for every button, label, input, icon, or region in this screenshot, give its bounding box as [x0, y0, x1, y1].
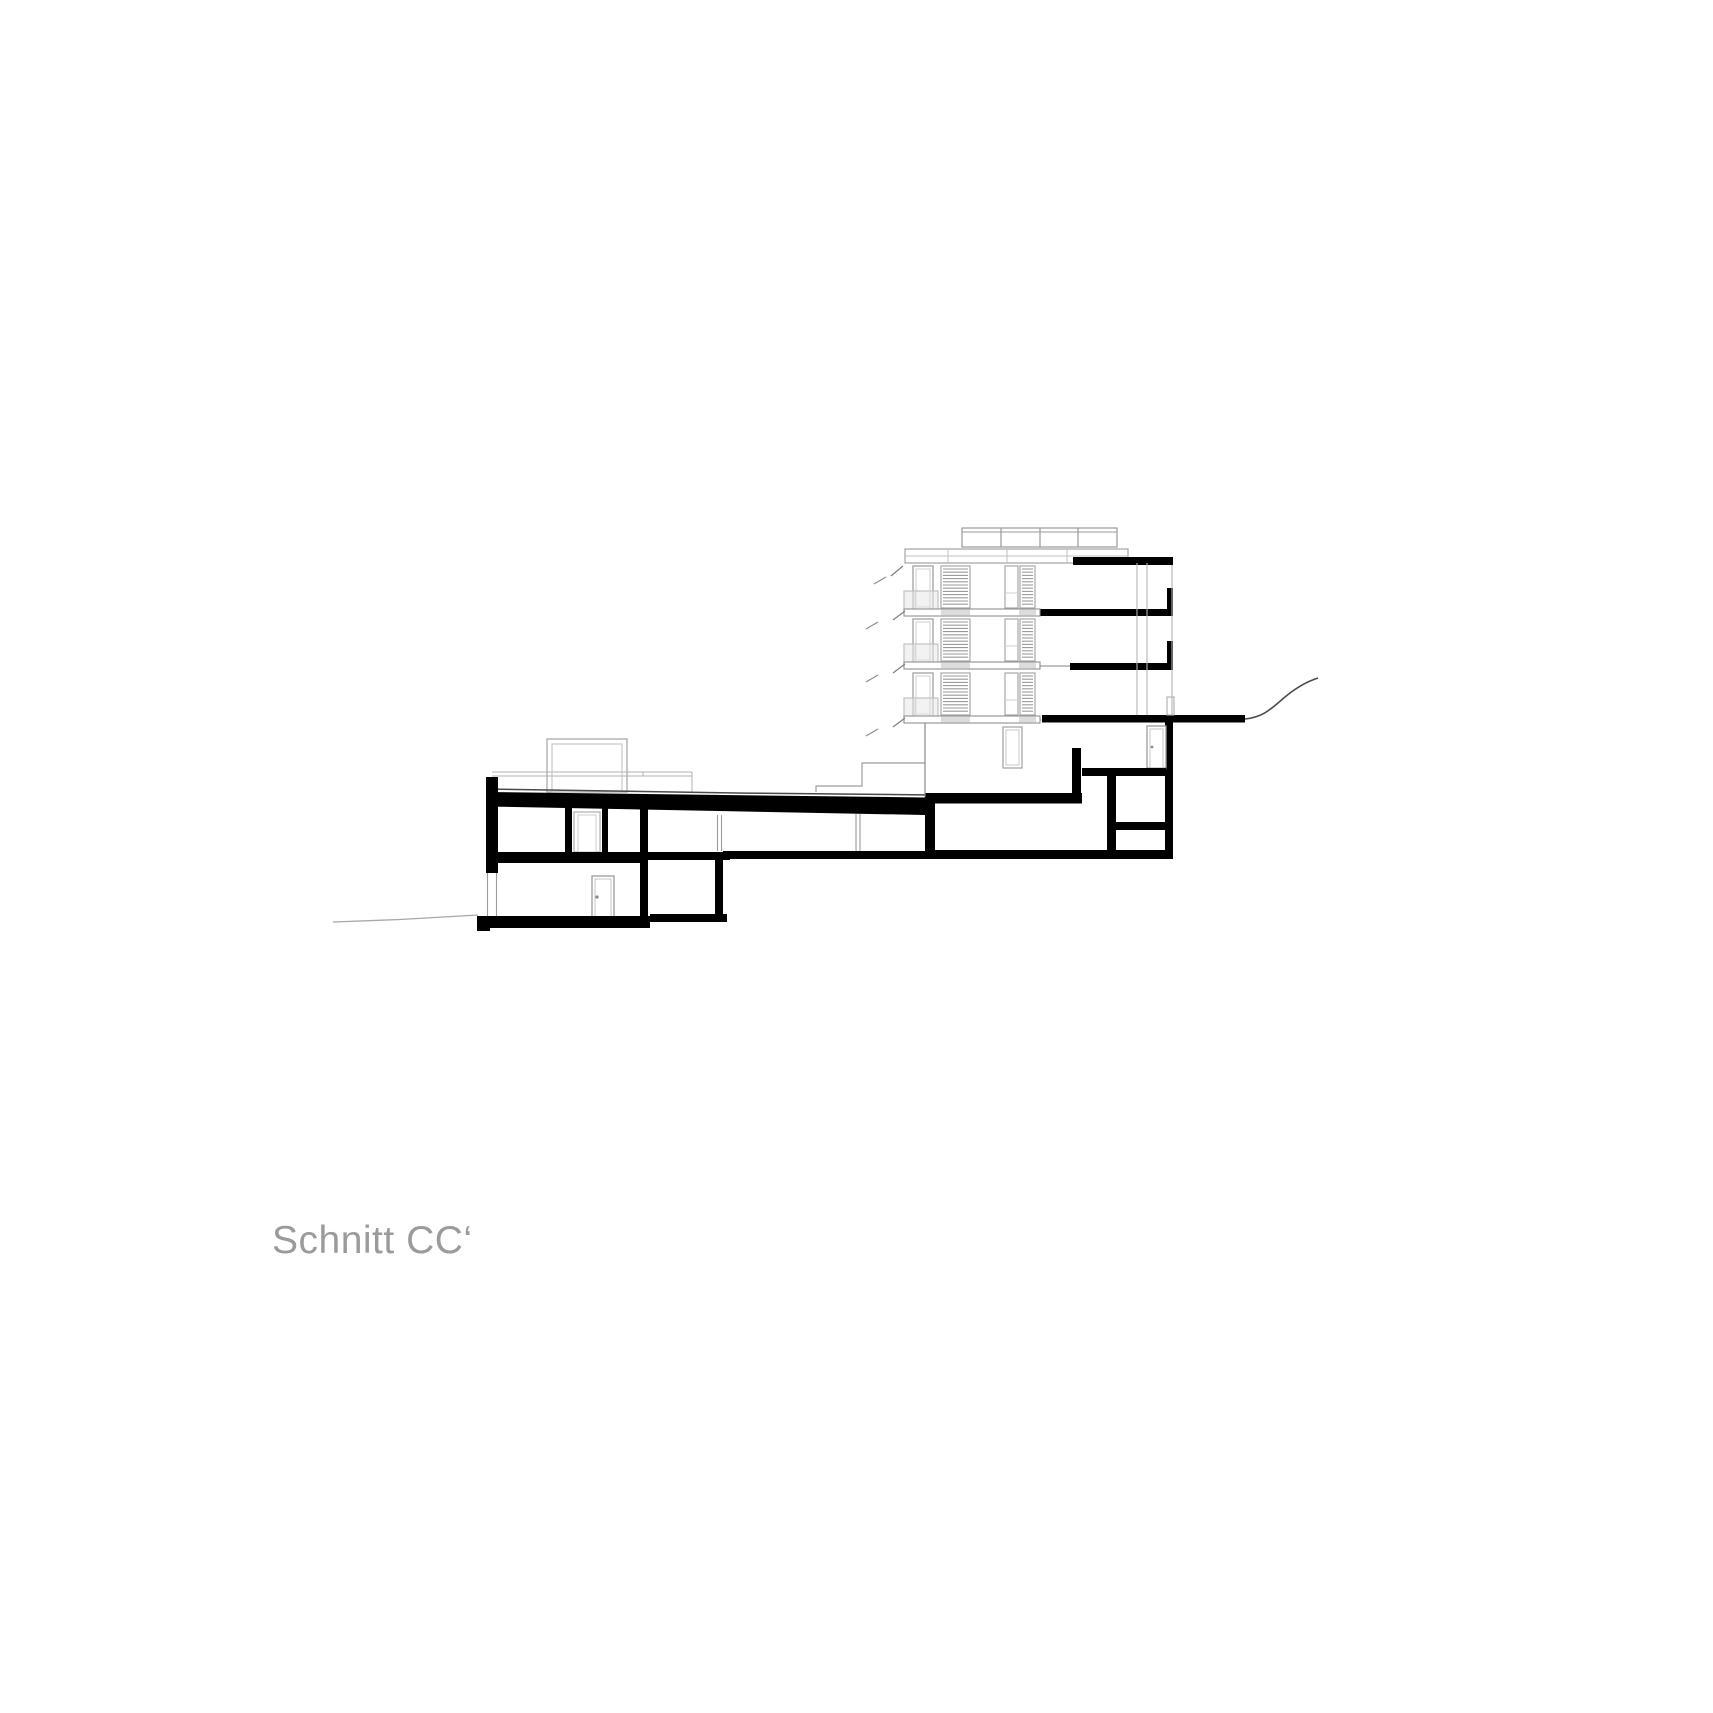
- room-floor-slab: [1082, 768, 1166, 776]
- roof-deck-slab: [487, 792, 925, 815]
- deck-stair-outline: [816, 723, 925, 797]
- basement-step-wall: [715, 855, 723, 920]
- interior-wall: [565, 808, 572, 853]
- roof-slab-cut: [1073, 557, 1173, 565]
- side-entry-door: [1167, 697, 1174, 715]
- grade-slab: [1042, 715, 1245, 723]
- terrain-line-left: [333, 915, 478, 922]
- basement-door: [592, 876, 614, 917]
- deck-slab-right: [925, 793, 1082, 804]
- section-label: Schnitt CC‘: [272, 1221, 473, 1260]
- door-handle: [1151, 746, 1154, 749]
- building-section-drawing: [0, 0, 1713, 1713]
- tower-section: [866, 528, 1173, 768]
- floor-slab-cut: [1040, 609, 1173, 616]
- roof-skylight: [547, 739, 627, 792]
- basement-room-door: [1147, 726, 1166, 768]
- ground-floor-slab: [498, 852, 648, 863]
- terrain-line-right: [1245, 678, 1318, 719]
- bottom-slab: [925, 850, 1173, 858]
- tower-base-floor: [1003, 727, 1022, 768]
- roof-railing: [962, 528, 1117, 547]
- interior-wall: [1107, 772, 1116, 852]
- roof-parapet: [874, 549, 1128, 584]
- floor-slab-cut: [1070, 663, 1173, 670]
- foundation-slab: [477, 916, 650, 928]
- left-exterior-wall: [486, 777, 498, 873]
- mid-slab: [1116, 822, 1166, 830]
- deck-support-wall: [925, 797, 935, 855]
- interior-wall: [602, 808, 608, 853]
- step-wall: [1072, 748, 1081, 803]
- drainage-spout-mark: [891, 566, 903, 576]
- door-handle: [595, 895, 598, 898]
- low-building-section: [477, 739, 1082, 931]
- drawing-canvas: Schnitt CC‘: [0, 0, 1713, 1713]
